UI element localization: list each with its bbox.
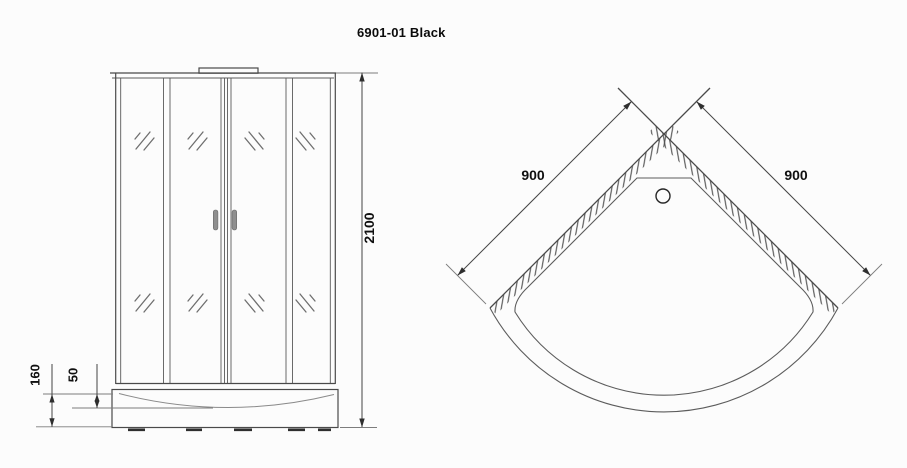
tray-lip-dim-label: 50 — [66, 368, 81, 382]
drain-circle — [656, 189, 670, 203]
width-left-dim-label: 900 — [521, 167, 545, 183]
height-dim-label: 2100 — [361, 212, 377, 243]
right-wall-line — [618, 88, 838, 308]
dimension-tray-lip: 50 — [66, 364, 214, 408]
tray-outer-arc — [490, 308, 838, 412]
drawing-canvas: 6901-01 Black — [0, 0, 907, 468]
frame-profiles — [116, 73, 336, 384]
dimension-overall-height: 2100 — [340, 73, 377, 428]
door-stiles — [221, 78, 231, 384]
right-door-handle — [232, 210, 237, 230]
panel-dividers — [164, 78, 293, 384]
top-view: 900 900 — [446, 88, 882, 412]
right-wall-hatching — [649, 126, 838, 315]
tray-inner-basin — [515, 178, 813, 395]
glass-shine-marks — [135, 132, 315, 312]
left-wall-hatching — [490, 126, 679, 315]
left-door-handle — [213, 210, 218, 230]
technical-drawing: 2100 160 50 — [0, 0, 907, 468]
tray-rim-curve — [119, 394, 334, 408]
tray-base-front — [112, 390, 338, 428]
tray-height-dim-label: 160 — [28, 364, 43, 386]
front-view — [110, 68, 378, 430]
left-wall-line — [490, 88, 710, 308]
width-right-dim-label: 900 — [784, 167, 808, 183]
